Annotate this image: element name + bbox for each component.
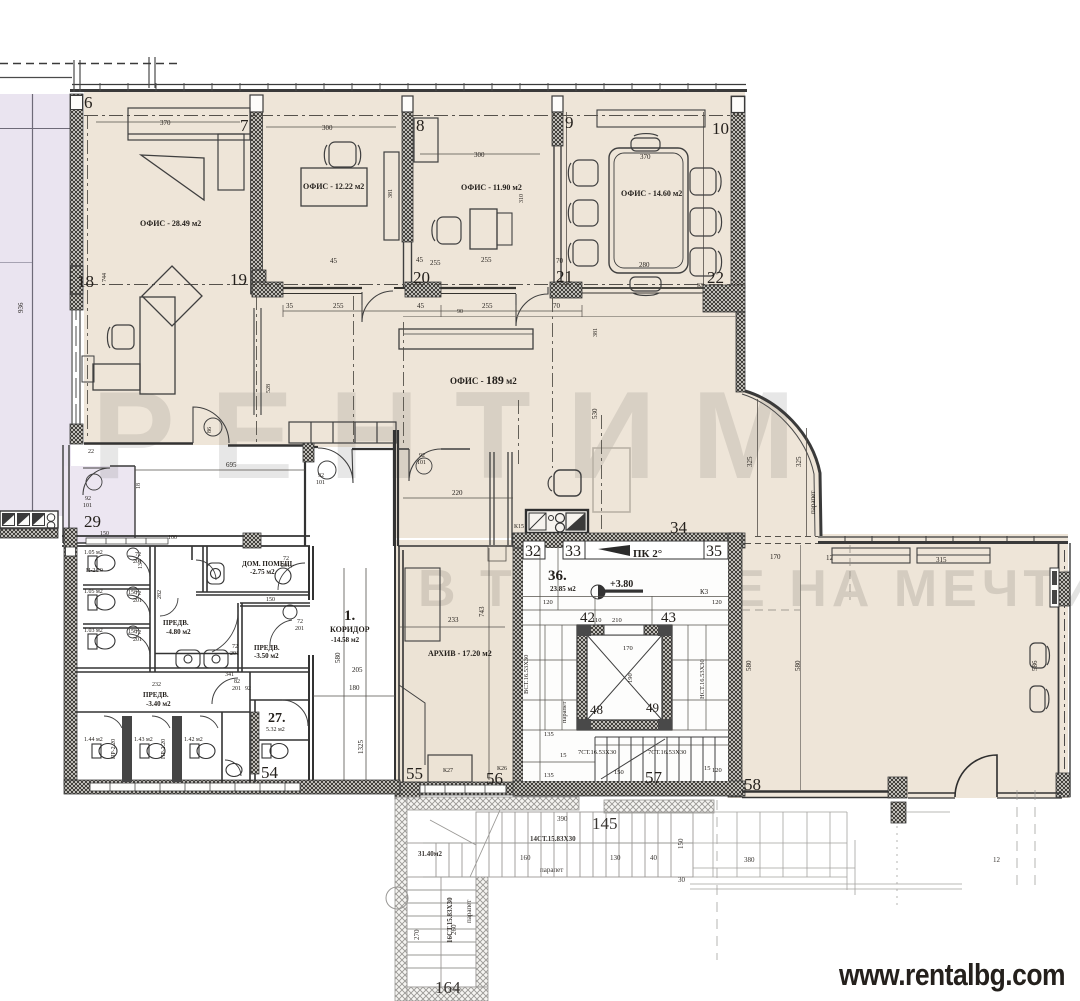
svg-text:22: 22 — [707, 268, 724, 287]
svg-text:40: 40 — [650, 854, 658, 862]
svg-text:ОФИС - 12.22 м2: ОФИС - 12.22 м2 — [303, 182, 364, 191]
svg-text:-3.50 м2: -3.50 м2 — [254, 652, 279, 660]
svg-text:1.: 1. — [344, 608, 356, 624]
svg-text:27.: 27. — [268, 711, 286, 726]
svg-text:310: 310 — [519, 194, 525, 203]
svg-text:49: 49 — [646, 700, 659, 715]
svg-text:7СТ.16.53Х30: 7СТ.16.53Х30 — [578, 749, 616, 756]
svg-text:72: 72 — [297, 619, 303, 625]
svg-text:70: 70 — [553, 302, 561, 310]
svg-text:390: 390 — [557, 815, 568, 823]
svg-text:К27: К27 — [443, 768, 453, 774]
svg-text:ОФИС - 14.60 м2: ОФИС - 14.60 м2 — [621, 189, 682, 198]
svg-text:695: 695 — [226, 461, 237, 469]
svg-text:270: 270 — [413, 929, 421, 940]
svg-text:70: 70 — [556, 257, 564, 265]
svg-text:www.rentalbg.com: www.rentalbg.com — [838, 957, 1065, 992]
svg-text:160: 160 — [520, 854, 531, 862]
svg-text:30: 30 — [678, 876, 686, 884]
svg-text:135: 135 — [544, 772, 554, 779]
svg-text:ПРЕДВ.: ПРЕДВ. — [254, 644, 280, 652]
svg-text:381: 381 — [593, 328, 599, 337]
svg-text:7: 7 — [240, 116, 249, 135]
svg-text:90: 90 — [457, 309, 463, 315]
svg-text:К15: К15 — [514, 524, 524, 530]
svg-text:АРХИВ - 17.20 м2: АРХИВ - 17.20 м2 — [428, 649, 492, 658]
svg-text:КОРИДОР: КОРИДОР — [330, 625, 370, 634]
svg-text:ПРЕДВ.: ПРЕДВ. — [163, 619, 189, 627]
svg-text:180: 180 — [349, 684, 360, 692]
svg-text:341: 341 — [225, 672, 234, 678]
svg-text:255: 255 — [333, 302, 344, 310]
svg-text:33: 33 — [565, 543, 581, 560]
svg-text:92: 92 — [419, 453, 425, 459]
svg-text:парапет: парапет — [561, 701, 568, 723]
svg-text:92: 92 — [245, 686, 251, 692]
svg-text:ПР-2.20: ПР-2.20 — [111, 739, 117, 759]
svg-text:7СТ.16.53Х30: 7СТ.16.53Х30 — [648, 749, 686, 756]
svg-text:260: 260 — [450, 924, 458, 935]
svg-text:Н-2.20: Н-2.20 — [86, 568, 103, 574]
svg-text:170: 170 — [623, 645, 633, 652]
svg-text:201: 201 — [295, 626, 304, 632]
svg-text:586: 586 — [1031, 660, 1039, 671]
svg-text:ОФИС - 11.90 м2: ОФИС - 11.90 м2 — [461, 183, 522, 192]
svg-text:205: 205 — [352, 666, 363, 674]
svg-text:45: 45 — [417, 302, 425, 310]
svg-text:21: 21 — [556, 267, 573, 286]
svg-text:15: 15 — [704, 765, 711, 772]
svg-text:35: 35 — [286, 302, 294, 310]
svg-text:-2.75 м2: -2.75 м2 — [250, 568, 275, 576]
svg-text:150: 150 — [266, 597, 275, 603]
svg-text:72: 72 — [135, 552, 141, 558]
svg-text:381: 381 — [388, 189, 394, 198]
svg-text:744: 744 — [102, 273, 108, 282]
svg-text:282: 282 — [157, 590, 163, 599]
svg-text:1.43 м2: 1.43 м2 — [134, 737, 153, 743]
svg-text:315: 315 — [936, 556, 947, 564]
svg-text:42: 42 — [580, 610, 595, 626]
svg-text:1.03 м2: 1.03 м2 — [84, 628, 103, 634]
svg-text:-3.40 м2: -3.40 м2 — [146, 700, 171, 708]
svg-text:255: 255 — [430, 259, 441, 267]
svg-text:1.05 м2: 1.05 м2 — [84, 589, 103, 595]
svg-text:220: 220 — [452, 489, 463, 497]
svg-text:34: 34 — [670, 518, 688, 537]
svg-text:150: 150 — [128, 590, 137, 596]
svg-text:РЕНТИМ: РЕНТИМ — [92, 367, 831, 505]
svg-text:300: 300 — [474, 151, 485, 159]
svg-text:101: 101 — [417, 460, 426, 466]
svg-text:10: 10 — [712, 119, 729, 138]
svg-text:580: 580 — [794, 660, 802, 671]
svg-text:300: 300 — [322, 124, 333, 132]
svg-text:201: 201 — [232, 686, 241, 692]
svg-text:150: 150 — [100, 531, 109, 537]
svg-text:150: 150 — [677, 838, 685, 849]
svg-text:48: 48 — [590, 702, 603, 717]
svg-text:32: 32 — [525, 543, 541, 560]
svg-text:8: 8 — [416, 116, 425, 135]
svg-text:1.42 м2: 1.42 м2 — [184, 737, 203, 743]
svg-text:170: 170 — [770, 553, 781, 561]
svg-text:201: 201 — [133, 637, 142, 643]
svg-text:55: 55 — [406, 764, 423, 783]
svg-text:100: 100 — [168, 535, 177, 541]
svg-text:ВСТ.16.53Х30: ВСТ.16.53Х30 — [523, 655, 530, 694]
svg-text:743: 743 — [478, 606, 486, 617]
svg-text:18: 18 — [77, 272, 94, 291]
svg-text:ОФИС - 189 м2: ОФИС - 189 м2 — [450, 373, 517, 387]
svg-text:ПК 2°: ПК 2° — [633, 548, 662, 560]
svg-text:190: 190 — [627, 673, 634, 683]
svg-text:58: 58 — [744, 775, 761, 794]
svg-text:16СТ.15.83Х30: 16СТ.15.83Х30 — [446, 897, 454, 943]
svg-text:72: 72 — [232, 644, 238, 650]
svg-text:1.05 м2: 1.05 м2 — [84, 550, 103, 556]
svg-text:К3: К3 — [700, 588, 709, 596]
svg-text:233: 233 — [448, 616, 459, 624]
svg-text:101: 101 — [316, 480, 325, 486]
svg-text:201: 201 — [230, 651, 239, 657]
svg-text:72: 72 — [283, 556, 289, 562]
svg-text:134: 134 — [138, 560, 144, 569]
svg-text:150: 150 — [128, 629, 137, 635]
svg-text:210: 210 — [612, 617, 622, 624]
svg-text:+3.80: +3.80 — [610, 579, 633, 590]
svg-text:92: 92 — [85, 496, 91, 502]
svg-text:255: 255 — [481, 256, 492, 264]
svg-text:145: 145 — [592, 814, 618, 833]
svg-text:135: 135 — [544, 731, 554, 738]
svg-text:36.: 36. — [548, 568, 567, 584]
svg-text:НСТ.16.53Х30: НСТ.16.53Х30 — [699, 659, 706, 699]
svg-text:12: 12 — [826, 554, 834, 562]
svg-text:101: 101 — [83, 503, 92, 509]
svg-text:280: 280 — [639, 261, 650, 269]
svg-text:35: 35 — [706, 543, 722, 560]
svg-text:ПР-2.20: ПР-2.20 — [161, 739, 167, 759]
svg-text:201: 201 — [281, 563, 290, 569]
svg-text:120: 120 — [712, 767, 722, 774]
svg-text:380: 380 — [744, 856, 755, 864]
svg-text:86: 86 — [207, 427, 213, 433]
svg-text:1.44 м2: 1.44 м2 — [84, 737, 103, 743]
svg-text:580: 580 — [745, 660, 753, 671]
svg-text:К9: К9 — [697, 283, 704, 289]
svg-text:150: 150 — [614, 769, 624, 776]
svg-text:12: 12 — [993, 856, 1001, 864]
svg-text:парапет: парапет — [465, 900, 473, 923]
svg-text:255: 255 — [482, 302, 493, 310]
svg-text:43: 43 — [661, 610, 676, 626]
svg-text:325: 325 — [746, 456, 754, 467]
svg-text:201: 201 — [133, 598, 142, 604]
svg-text:56: 56 — [486, 769, 503, 788]
svg-text:164: 164 — [435, 978, 461, 997]
svg-text:ПРЕДВ.: ПРЕДВ. — [143, 691, 169, 699]
svg-text:92: 92 — [318, 473, 324, 479]
svg-text:парапет: парапет — [540, 866, 563, 874]
svg-text:530: 530 — [591, 408, 599, 419]
svg-text:15: 15 — [560, 752, 567, 759]
svg-text:45: 45 — [416, 256, 424, 264]
svg-text:120: 120 — [712, 599, 722, 606]
svg-text:29: 29 — [84, 512, 101, 531]
svg-text:ОФИС - 28.49 м2: ОФИС - 28.49 м2 — [140, 219, 201, 228]
svg-text:45: 45 — [330, 257, 338, 265]
svg-text:14СТ.15.83Х30: 14СТ.15.83Х30 — [530, 835, 576, 843]
svg-text:370: 370 — [640, 153, 651, 161]
svg-text:-14.58 м2: -14.58 м2 — [331, 636, 360, 644]
svg-text:130: 130 — [610, 854, 621, 862]
svg-text:5.32 м2: 5.32 м2 — [266, 727, 285, 733]
svg-text:232: 232 — [152, 682, 161, 688]
svg-text:82: 82 — [234, 679, 240, 685]
svg-text:18: 18 — [136, 483, 142, 489]
svg-text:23.85 м2: 23.85 м2 — [550, 585, 576, 593]
svg-text:1325: 1325 — [357, 740, 365, 755]
svg-text:20: 20 — [413, 268, 430, 287]
svg-text:57: 57 — [645, 768, 663, 787]
svg-text:19: 19 — [230, 270, 247, 289]
svg-text:54: 54 — [261, 763, 279, 782]
svg-text:6: 6 — [84, 93, 93, 112]
svg-text:120: 120 — [543, 599, 553, 606]
svg-text:9: 9 — [565, 113, 574, 132]
svg-text:парапет: парапет — [809, 491, 817, 514]
svg-text:325: 325 — [795, 456, 803, 467]
svg-text:528: 528 — [266, 384, 272, 393]
svg-text:31.40м2: 31.40м2 — [418, 850, 443, 858]
svg-text:22: 22 — [88, 449, 94, 455]
svg-text:580: 580 — [334, 652, 342, 663]
svg-text:370: 370 — [160, 119, 171, 127]
svg-text:936: 936 — [17, 302, 25, 313]
svg-text:-4.80 м2: -4.80 м2 — [166, 628, 191, 636]
